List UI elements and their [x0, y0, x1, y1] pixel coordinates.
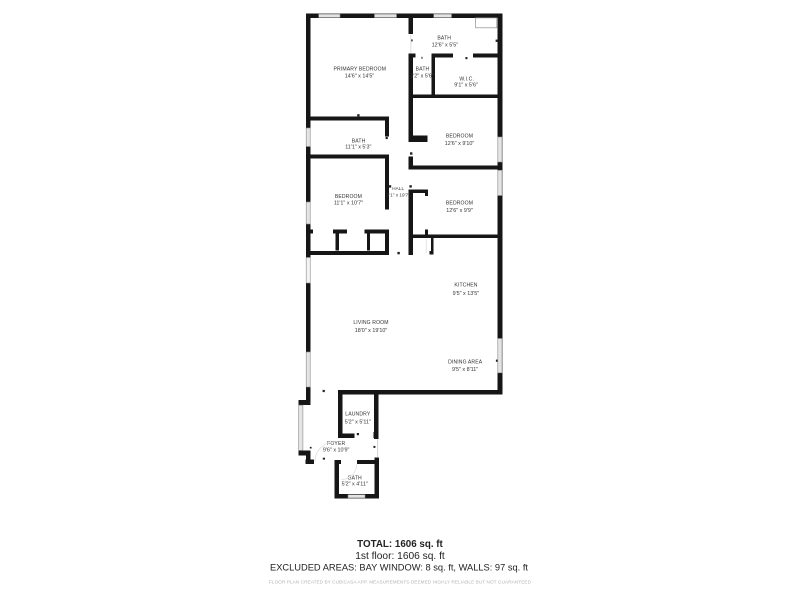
- svg-text:11'1" x 10'7": 11'1" x 10'7": [334, 200, 363, 206]
- svg-text:KITCHEN: KITCHEN: [454, 283, 477, 289]
- svg-text:BATH: BATH: [437, 36, 451, 42]
- svg-text:11'1" x 5'3": 11'1" x 5'3": [345, 144, 371, 150]
- svg-text:DINING AREA: DINING AREA: [448, 359, 483, 365]
- svg-text:FLOOR PLAN CREATED BY CUBICASA: FLOOR PLAN CREATED BY CUBICASA APP. MEAS…: [269, 579, 532, 584]
- svg-text:3'2" x 5'6": 3'2" x 5'6": [410, 73, 434, 79]
- svg-text:LIVING ROOM: LIVING ROOM: [353, 320, 388, 326]
- svg-text:12'6" x 9'9": 12'6" x 9'9": [446, 208, 473, 214]
- svg-text:9'5" x 13'5": 9'5" x 13'5": [453, 291, 480, 297]
- svg-text:3'1" x 19'7": 3'1" x 19'7": [387, 192, 410, 197]
- svg-text:12'6" x 5'5": 12'6" x 5'5": [432, 43, 459, 49]
- svg-text:BEDROOM: BEDROOM: [446, 200, 473, 206]
- svg-text:18'0" x 19'10": 18'0" x 19'10": [355, 328, 388, 334]
- svg-text:BEDROOM: BEDROOM: [335, 194, 362, 200]
- svg-text:PRIMARY BEDROOM: PRIMARY BEDROOM: [334, 67, 387, 73]
- svg-text:9'6" x 10'9": 9'6" x 10'9": [323, 447, 350, 453]
- svg-text:14'6" x 14'5": 14'6" x 14'5": [345, 73, 375, 79]
- svg-text:9'1" x 5'6": 9'1" x 5'6": [454, 82, 478, 88]
- svg-text:5'2" x 4'11": 5'2" x 4'11": [342, 482, 368, 488]
- svg-text:FOYER: FOYER: [327, 441, 345, 447]
- svg-text:EXCLUDED AREAS: BAY WINDOW: 8: EXCLUDED AREAS: BAY WINDOW: 8 sq. ft, WA…: [270, 563, 528, 573]
- svg-text:TOTAL: 1606 sq. ft: TOTAL: 1606 sq. ft: [357, 539, 443, 550]
- svg-text:1st floor: 1606 sq. ft: 1st floor: 1606 sq. ft: [355, 551, 445, 562]
- svg-text:BATH: BATH: [416, 67, 430, 73]
- svg-text:BEDROOM: BEDROOM: [446, 133, 473, 139]
- svg-text:5'2" x 5'11": 5'2" x 5'11": [345, 420, 371, 426]
- svg-text:HALL: HALL: [392, 186, 404, 191]
- svg-text:12'6" x 9'10": 12'6" x 9'10": [445, 141, 475, 147]
- svg-text:LAUNDRY: LAUNDRY: [345, 411, 371, 417]
- svg-text:9'5" x 8'11": 9'5" x 8'11": [452, 367, 478, 373]
